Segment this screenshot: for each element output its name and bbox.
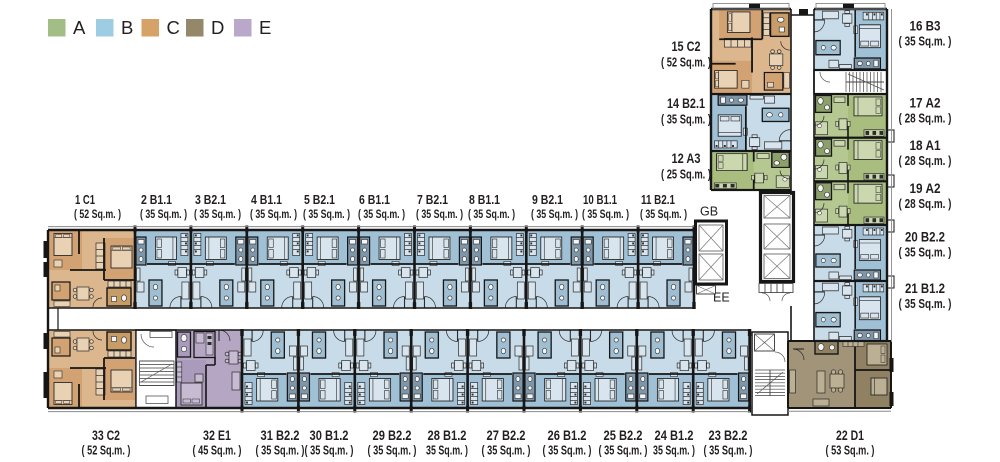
svg-text:33 C2: 33 C2 bbox=[92, 428, 120, 443]
svg-text:( 35 Sq.m. ): ( 35 Sq.m. ) bbox=[661, 113, 711, 127]
svg-text:( 53 Sq.m. ): ( 53 Sq.m. ) bbox=[826, 444, 875, 458]
svg-text:( 52 Sq.m. ): ( 52 Sq.m. ) bbox=[661, 56, 711, 70]
svg-text:( 35 Sq.m. ): ( 35 Sq.m. ) bbox=[416, 207, 463, 221]
svg-text:35 Sq.m. ): 35 Sq.m. ) bbox=[426, 444, 468, 458]
svg-text:( 35 Sq.m. ): ( 35 Sq.m. ) bbox=[482, 444, 531, 458]
svg-text:11 B2.1: 11 B2.1 bbox=[641, 192, 675, 207]
svg-text:20 B2.2: 20 B2.2 bbox=[905, 229, 945, 245]
svg-text:( 52 Sq.m. ): ( 52 Sq.m. ) bbox=[82, 444, 131, 458]
svg-text:10 B1.1: 10 B1.1 bbox=[583, 192, 617, 207]
svg-text:( 28 Sq.m. ): ( 28 Sq.m. ) bbox=[899, 153, 952, 168]
svg-text:( 35 Sq.m. ): ( 35 Sq.m. ) bbox=[194, 207, 241, 221]
svg-text:B: B bbox=[121, 17, 133, 38]
svg-text:( 52 Sq.m. ): ( 52 Sq.m. ) bbox=[74, 207, 121, 221]
svg-text:( 25 Sq.m. ): ( 25 Sq.m. ) bbox=[661, 168, 711, 182]
svg-text:30 B1.2: 30 B1.2 bbox=[310, 428, 349, 443]
svg-text:23 B2.2: 23 B2.2 bbox=[709, 428, 748, 443]
svg-text:( 35 Sq.m. ): ( 35 Sq.m. ) bbox=[543, 444, 592, 458]
svg-text:32 E1: 32 E1 bbox=[203, 428, 231, 443]
svg-text:( 35 Sq.m. ): ( 35 Sq.m. ) bbox=[358, 207, 405, 221]
svg-text:( 35 Sq.m. ): ( 35 Sq.m. ) bbox=[704, 444, 753, 458]
svg-text:19 A2: 19 A2 bbox=[910, 180, 941, 196]
svg-text:A: A bbox=[73, 17, 86, 38]
svg-text:( 35 Sq.m. ): ( 35 Sq.m. ) bbox=[305, 444, 354, 458]
svg-text:15 C2: 15 C2 bbox=[672, 39, 701, 54]
svg-text:1 C1: 1 C1 bbox=[75, 192, 95, 207]
svg-text:E: E bbox=[259, 17, 271, 38]
svg-text:( 35 Sq.m. ): ( 35 Sq.m. ) bbox=[140, 207, 187, 221]
svg-text:( 35 Sq.m. ): ( 35 Sq.m. ) bbox=[640, 207, 687, 221]
svg-text:7 B2.1: 7 B2.1 bbox=[417, 192, 448, 207]
svg-text:31 B2.2: 31 B2.2 bbox=[261, 428, 300, 443]
svg-text:( 35 Sq.m. ): ( 35 Sq.m. ) bbox=[899, 34, 952, 49]
svg-text:22 D1: 22 D1 bbox=[836, 428, 864, 443]
svg-text:( 28 Sq.m. ): ( 28 Sq.m. ) bbox=[899, 111, 952, 126]
svg-text:35 Sq.m. ): 35 Sq.m. ) bbox=[653, 444, 695, 458]
svg-text:( 35 Sq.m. ): ( 35 Sq.m. ) bbox=[468, 207, 515, 221]
svg-text:17 A2: 17 A2 bbox=[910, 95, 941, 111]
svg-text:3 B2.1: 3 B2.1 bbox=[195, 192, 226, 207]
svg-text:24 B1.2: 24 B1.2 bbox=[655, 428, 694, 443]
svg-text:29 B2.2: 29 B2.2 bbox=[373, 428, 412, 443]
svg-text:6 B1.1: 6 B1.1 bbox=[359, 192, 390, 207]
svg-text:27 B2.2: 27 B2.2 bbox=[487, 428, 526, 443]
svg-text:( 35 Sq.m. ): ( 35 Sq.m. ) bbox=[899, 296, 952, 311]
svg-text:( 35 Sq.m. ): ( 35 Sq.m. ) bbox=[368, 444, 417, 458]
svg-text:5 B2.1: 5 B2.1 bbox=[304, 192, 335, 207]
svg-text:D: D bbox=[211, 17, 224, 38]
svg-text:( 35 Sq.m. ): ( 35 Sq.m. ) bbox=[899, 245, 952, 260]
svg-text:( 35 Sq.m. ): ( 35 Sq.m. ) bbox=[599, 444, 648, 458]
svg-text:25 B2.2: 25 B2.2 bbox=[604, 428, 643, 443]
svg-text:GB: GB bbox=[700, 205, 718, 219]
svg-text:28 B1.2: 28 B1.2 bbox=[428, 428, 467, 443]
svg-text:( 35 Sq.m. ): ( 35 Sq.m. ) bbox=[531, 207, 578, 221]
svg-text:( 45 Sq.m. ): ( 45 Sq.m. ) bbox=[193, 444, 242, 458]
svg-text:12 A3: 12 A3 bbox=[672, 151, 701, 166]
svg-text:( 35 Sq.m. ): ( 35 Sq.m. ) bbox=[250, 207, 297, 221]
svg-text:( 35 Sq.m. ): ( 35 Sq.m. ) bbox=[303, 207, 350, 221]
svg-text:26 B1.2: 26 B1.2 bbox=[548, 428, 587, 443]
svg-text:18 A1: 18 A1 bbox=[910, 137, 941, 153]
svg-text:9 B2.1: 9 B2.1 bbox=[532, 192, 563, 207]
svg-text:14 B2.1: 14 B2.1 bbox=[667, 96, 705, 111]
svg-text:4 B1.1: 4 B1.1 bbox=[251, 192, 282, 207]
svg-text:16 B3: 16 B3 bbox=[910, 18, 941, 34]
svg-text:( 35 Sq.m. ): ( 35 Sq.m. ) bbox=[256, 444, 305, 458]
svg-text:C: C bbox=[167, 17, 180, 38]
svg-text:( 28 Sq.m. ): ( 28 Sq.m. ) bbox=[899, 196, 952, 211]
svg-text:2 B1.1: 2 B1.1 bbox=[141, 192, 172, 207]
svg-text:8 B1.1: 8 B1.1 bbox=[469, 192, 500, 207]
svg-text:( 35 Sq.m. ): ( 35 Sq.m. ) bbox=[582, 207, 629, 221]
svg-text:21 B1.2: 21 B1.2 bbox=[905, 280, 945, 296]
